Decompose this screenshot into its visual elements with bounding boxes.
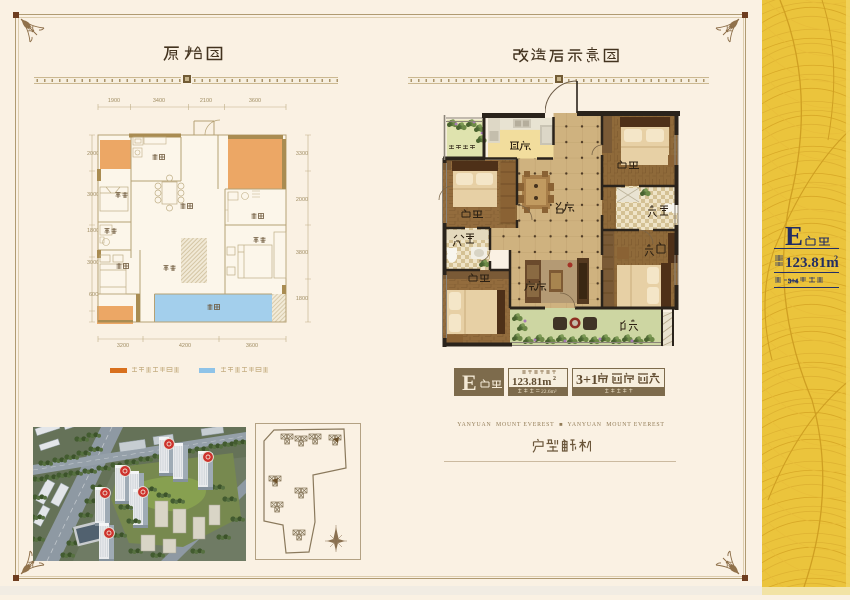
svg-text:123.81m: 123.81m: [512, 376, 551, 388]
svg-text:3300: 3300: [296, 151, 308, 157]
svg-text:3000: 3000: [87, 192, 99, 198]
svg-text:123.81m: 123.81m: [785, 255, 839, 271]
svg-text:3+4: 3+4: [788, 278, 799, 285]
svg-text:2000: 2000: [87, 151, 99, 157]
svg-text:600: 600: [89, 292, 98, 298]
svg-text:2: 2: [553, 376, 556, 382]
svg-text:1800: 1800: [87, 228, 99, 234]
svg-text:1800: 1800: [296, 296, 308, 302]
svg-text:E: E: [462, 370, 477, 395]
svg-text:2100: 2100: [200, 98, 212, 104]
svg-text:3600: 3600: [246, 343, 258, 349]
svg-text:4200: 4200: [179, 343, 191, 349]
svg-text:3600: 3600: [249, 98, 261, 104]
svg-text:3400: 3400: [153, 98, 165, 104]
svg-text:E: E: [785, 221, 803, 251]
svg-text:3200: 3200: [117, 343, 129, 349]
svg-text:1900: 1900: [108, 98, 120, 104]
svg-text:2000: 2000: [296, 197, 308, 203]
svg-text:2: 2: [834, 254, 838, 263]
svg-text:3000: 3000: [87, 260, 99, 266]
svg-text:3800: 3800: [296, 250, 308, 256]
svg-text:3+1: 3+1: [576, 373, 598, 388]
svg-text:22.6m²: 22.6m²: [541, 389, 557, 395]
